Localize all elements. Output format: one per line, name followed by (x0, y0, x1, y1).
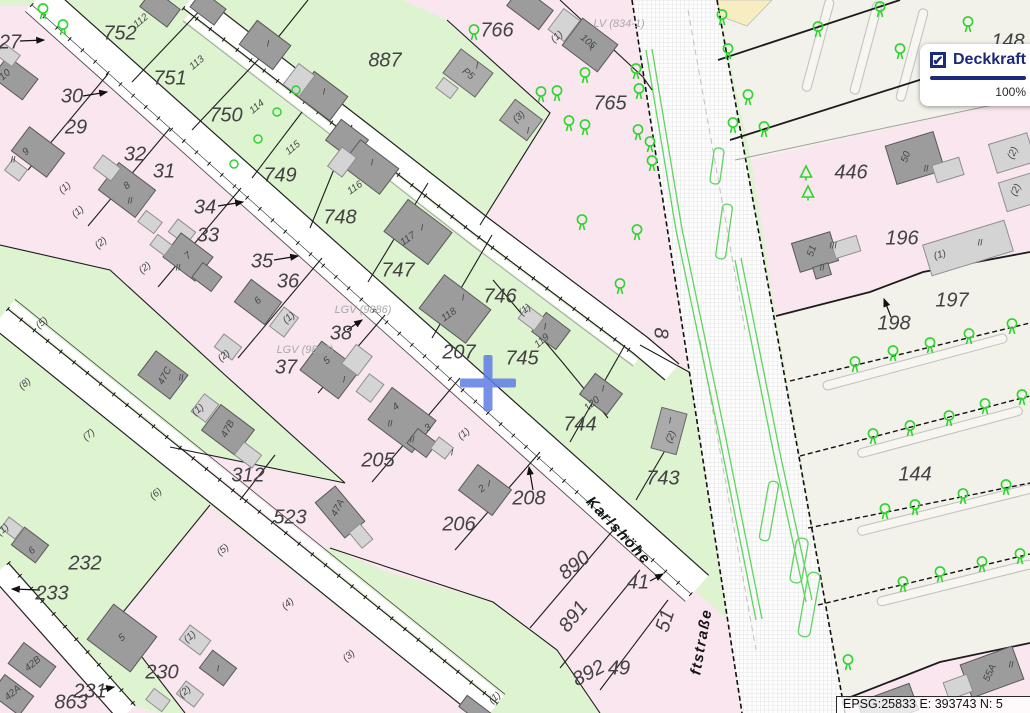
opacity-checkbox[interactable]: ✔ (930, 52, 946, 68)
opacity-panel: ✔ Deckkraft 100% (920, 44, 1030, 106)
cadastral-map[interactable]: 7527517507497487478877667657467457447432… (0, 0, 1030, 713)
map-viewport[interactable]: 7527517507497487478877667657467457447432… (0, 0, 1030, 713)
coordinate-statusbar: EPSG:25833 E: 393743 N: 5 (836, 696, 1030, 713)
opacity-label: Deckkraft (953, 51, 1026, 69)
coordinate-text: EPSG:25833 E: 393743 N: 5 (843, 697, 1003, 711)
opacity-value: 100% (930, 85, 1026, 99)
checkmark-icon: ✔ (933, 54, 944, 67)
opacity-slider[interactable] (930, 76, 1026, 80)
